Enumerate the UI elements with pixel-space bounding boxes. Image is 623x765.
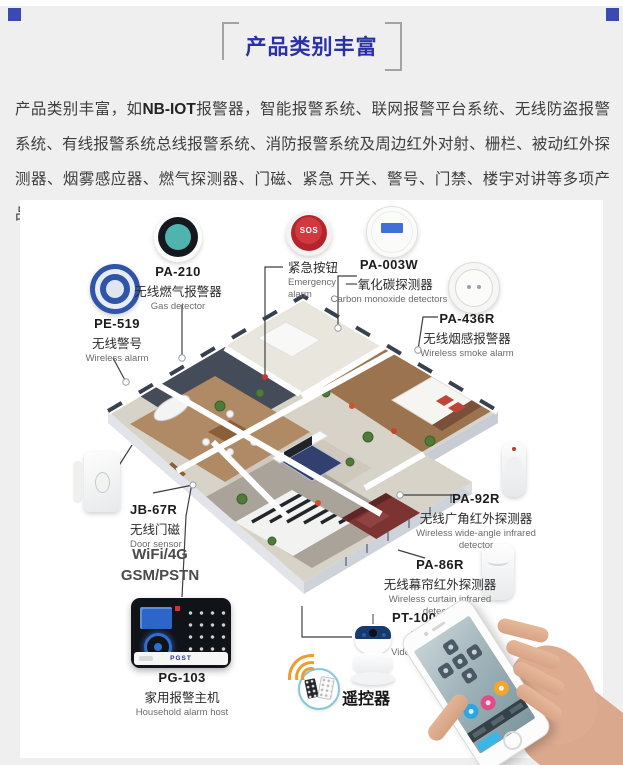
app-round-button-pink <box>478 692 499 713</box>
label-pa92r: PA-92R 无线广角红外探测器 Wireless wide-angle inf… <box>407 491 545 552</box>
title-bracket-frame: 产品类别丰富 <box>222 22 402 71</box>
en-text: Gas detector <box>118 301 238 313</box>
door-sensor-device <box>84 452 120 512</box>
camera-base <box>351 672 395 685</box>
label-connectivity: WiFi/4G GSM/PSTN <box>110 544 210 586</box>
hand-finger <box>496 617 550 644</box>
host-keypad <box>185 607 227 653</box>
decor-square-left <box>8 8 21 21</box>
host-lcd-screen <box>140 607 172 629</box>
page-title: 产品类别丰富 <box>246 36 378 59</box>
intro-text-1: 产品类别丰富，如 <box>15 101 142 118</box>
model-text: PA-86R <box>372 557 508 572</box>
keyfob-white <box>317 676 335 700</box>
article-page: 产品类别丰富 产品类别丰富，如NB-IOT报警器，智能报警系统、联网报警平台系统… <box>0 0 623 765</box>
co-detector-device <box>366 206 418 258</box>
label-pa210: PA-210 无线燃气报警器 Gas detector <box>118 264 238 313</box>
en-text: Wireless wide-angle infrared detector <box>407 528 545 552</box>
model-text: JB-67R <box>130 502 222 517</box>
model-text: PG-103 <box>121 670 243 685</box>
label-pg103: PG-103 家用报警主机 Household alarm host <box>121 670 243 719</box>
en-text: Wireless smoke alarm <box>397 348 537 360</box>
en-text: Household alarm host <box>121 707 243 719</box>
pir-detector-device <box>502 441 526 497</box>
app-icon <box>437 662 455 680</box>
gas-detector-device <box>154 214 202 262</box>
gas-detector-face <box>158 217 198 257</box>
smoke-detector-vents <box>467 285 471 289</box>
model-text: PA-003W <box>318 257 460 272</box>
cn-text: 遥控器 <box>342 691 390 708</box>
cn-text: 无线烟感报警器 <box>397 328 537 347</box>
phone-speaker <box>431 621 445 632</box>
cn-text: 无线警号 <box>57 333 177 352</box>
model-text: PA-436R <box>397 311 537 326</box>
phone-camera-dot <box>423 631 429 637</box>
host-indicator-led <box>175 606 180 611</box>
cn-text: 无线燃气报警器 <box>118 281 238 300</box>
en-text: Wireless alarm <box>57 353 177 365</box>
decor-square-right <box>606 8 619 21</box>
model-text: PE-519 <box>57 316 177 331</box>
cn-text: 无线幕帘红外探测器 <box>372 574 508 593</box>
alarm-host-device: PGST <box>131 598 231 668</box>
app-round-button-orange <box>491 678 512 699</box>
smartphone-in-hand <box>405 603 605 763</box>
label-pa003w: PA-003W 一氧化碳探测器 Carbon monoxide detector… <box>318 257 460 306</box>
label-pa436r: PA-436R 无线烟感报警器 Wireless smoke alarm <box>397 311 537 360</box>
app-icon <box>451 652 469 670</box>
intro-highlight: NB-IOT <box>142 101 195 118</box>
app-icon <box>460 667 478 685</box>
wireless-signal-icon <box>268 634 314 680</box>
cn-text: 一氧化碳探测器 <box>318 274 460 293</box>
section-header: 产品类别丰富 <box>0 22 623 71</box>
wifi-line2: GSM/PSTN <box>121 567 199 584</box>
model-text: PA-92R <box>407 491 545 506</box>
product-diagram-panel: SOS PGST PA-210 无 <box>20 200 603 758</box>
cn-text: 无线广角红外探测器 <box>407 508 545 527</box>
top-white-strip <box>0 0 623 6</box>
sos-button-label: SOS <box>286 226 332 235</box>
label-pe519: PE-519 无线警号 Wireless alarm <box>57 316 177 365</box>
en-text: Carbon monoxide detectors <box>318 294 460 306</box>
wifi-line1: WiFi/4G <box>132 546 188 563</box>
app-icon <box>465 643 483 661</box>
cn-text: 无线门磁 <box>130 519 222 538</box>
model-text: PA-210 <box>118 264 238 279</box>
cn-text: 家用报警主机 <box>121 687 243 706</box>
sos-button-device: SOS <box>286 212 332 256</box>
app-icon <box>442 638 460 656</box>
co-detector-lcd <box>381 223 403 233</box>
host-brand-logo: PGST <box>134 652 228 665</box>
